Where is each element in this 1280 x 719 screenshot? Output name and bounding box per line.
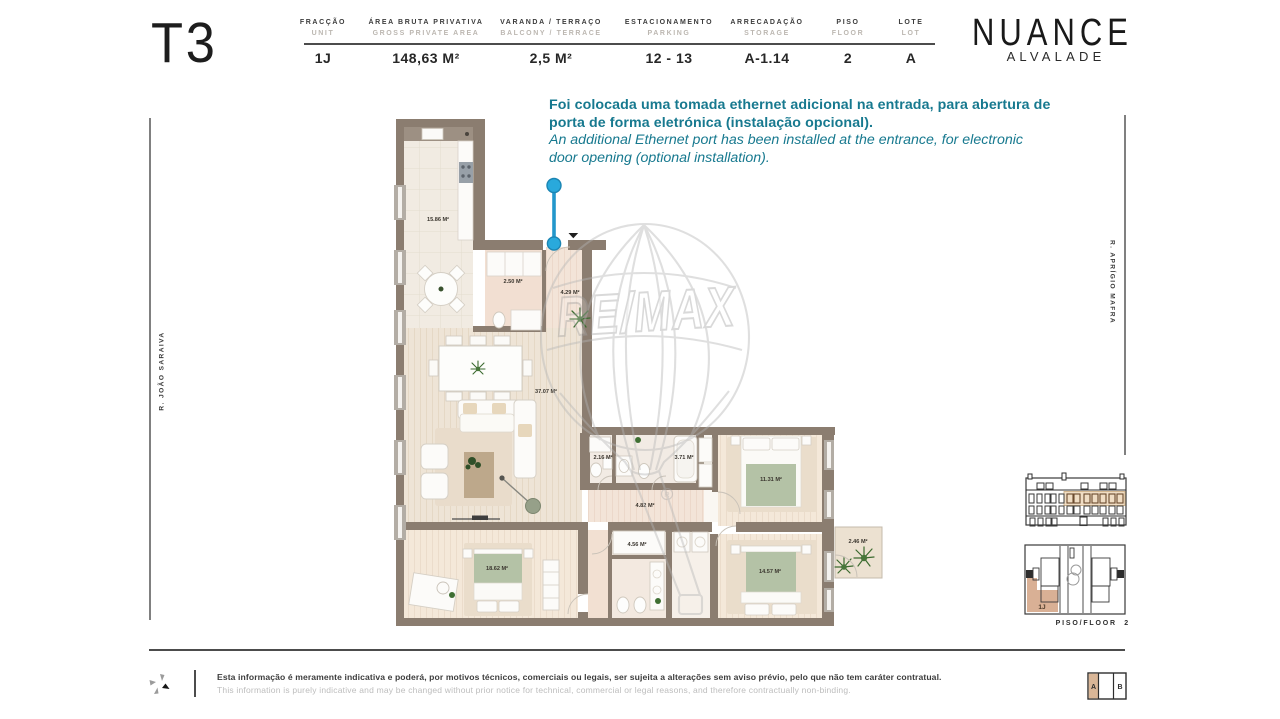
svg-text:11.31 M²: 11.31 M² [760, 476, 782, 483]
svg-text:B: B [1117, 684, 1122, 691]
svg-text:2.50 M²: 2.50 M² [504, 278, 523, 285]
svg-text:R: R [664, 490, 670, 499]
svg-text:14.57 M²: 14.57 M² [759, 568, 781, 575]
svg-text:2.16 M²: 2.16 M² [594, 454, 613, 461]
svg-text:A: A [1091, 684, 1096, 691]
svg-text:3.71 M²: 3.71 M² [675, 454, 694, 461]
svg-text:4.56 M²: 4.56 M² [628, 541, 647, 548]
svg-text:18.62 M²: 18.62 M² [486, 565, 508, 572]
svg-text:15.86 M²: 15.86 M² [427, 216, 449, 223]
svg-text:1J: 1J [1038, 604, 1046, 611]
svg-text:2.46 M²: 2.46 M² [849, 538, 868, 545]
svg-text:RE/MAX: RE/MAX [555, 275, 738, 348]
